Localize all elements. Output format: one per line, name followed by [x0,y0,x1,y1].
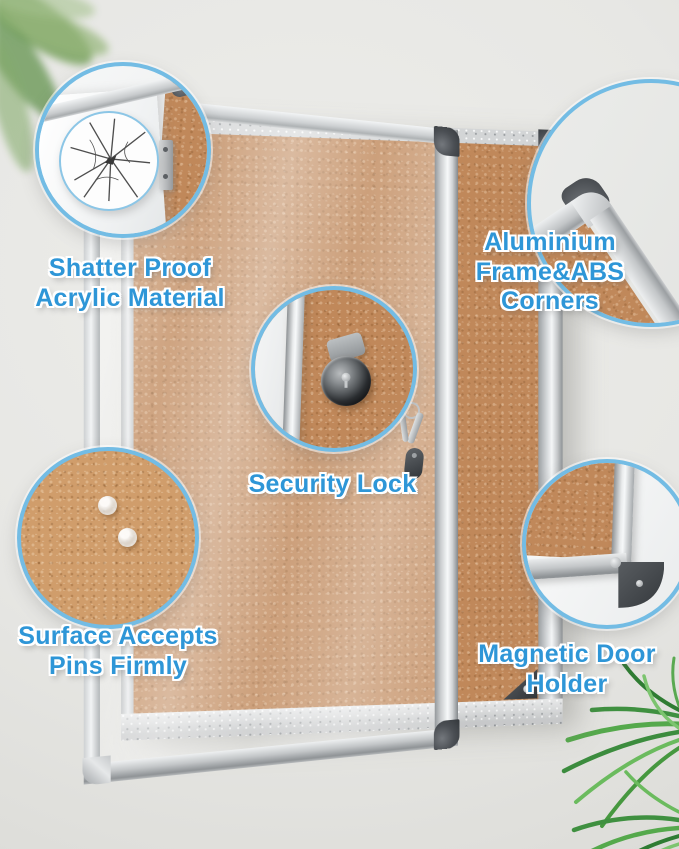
label-line: Holder [462,670,672,700]
callout-magnet-circle [522,459,679,629]
label-line: Surface Accepts [8,622,228,652]
label-surface-pins: Surface Accepts Pins Firmly [8,622,228,681]
door-hinge [159,140,173,190]
callout-shatter-circle [35,62,211,238]
label-line: Shatter Proof [10,254,250,284]
magnet-dot [636,580,643,587]
label-magnetic-door: Magnetic Door Holder [462,640,672,699]
door-corner-bottom-left [83,755,111,785]
door-frame-bar [522,553,627,581]
label-shatter-proof: Shatter Proof Acrylic Material [10,254,250,313]
push-pin-icon [98,496,117,515]
label-line: Aluminium [425,228,675,258]
label-line: Frame&ABS Corners [425,258,675,317]
keyhole-icon [341,373,352,389]
label-line: Security Lock [235,470,430,500]
screw-icon [163,147,168,152]
label-aluminium-frame: Aluminium Frame&ABS Corners [425,228,675,317]
crack-pattern-icon [61,113,157,209]
callout-pins-circle [17,447,199,629]
crack-zoom-circle [59,111,159,211]
security-lock-cylinder [321,356,371,406]
callout-lock-circle [251,286,417,452]
label-line: Acrylic Material [10,284,250,314]
push-pin-icon [118,528,137,547]
label-security-lock: Security Lock [235,470,430,500]
product-infographic-scene: Shatter Proof Acrylic Material Aluminium… [0,0,679,849]
screw-icon [163,174,168,179]
label-line: Pins Firmly [8,652,228,682]
label-line: Magnetic Door [462,640,672,670]
cork-surface [522,459,621,560]
